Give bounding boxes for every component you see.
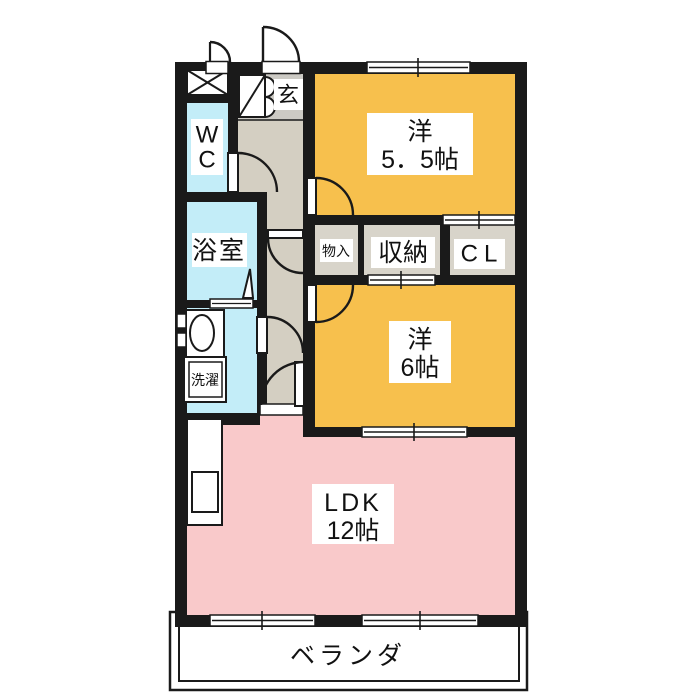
room-name: 浴室 bbox=[192, 237, 246, 265]
room-name: CL bbox=[461, 241, 504, 268]
wall-wc-bath bbox=[187, 192, 267, 202]
entrance-door bbox=[262, 27, 300, 74]
wall-bath-hall bbox=[257, 202, 267, 413]
label-ldk: LDK 12帖 bbox=[312, 484, 394, 545]
wall-right bbox=[515, 62, 527, 627]
wash-basin-fitting-2 bbox=[177, 333, 186, 347]
meter-box-door-arc bbox=[210, 42, 230, 62]
washing-machine: 洗濯 bbox=[184, 357, 226, 402]
label-western-5-5: 洋 5．5帖 bbox=[367, 113, 473, 175]
meter-box-doorway bbox=[206, 62, 228, 74]
room-name: LDK bbox=[324, 489, 382, 517]
hall-ldk-door-leaf bbox=[295, 362, 304, 406]
label-closet: CL bbox=[454, 239, 505, 269]
room-name: 玄 bbox=[277, 83, 299, 108]
entrance-door-arc bbox=[263, 27, 299, 62]
bath-sliding-door bbox=[210, 299, 253, 308]
label-small-storage: 物入 bbox=[320, 239, 353, 262]
label-bath: 浴室 bbox=[192, 233, 247, 267]
label-entrance: 玄 bbox=[274, 79, 303, 110]
floor-plan: ベランダ bbox=[0, 0, 700, 700]
room-name: 収納 bbox=[378, 239, 428, 267]
room-name: 洋 bbox=[407, 326, 432, 354]
wc-line-1: W bbox=[196, 122, 219, 149]
room-name: 洋 bbox=[407, 118, 432, 146]
western-6-door-leaf bbox=[307, 285, 316, 322]
wc-line-2: C bbox=[198, 147, 215, 174]
meter-box-door bbox=[206, 42, 230, 74]
wash-basin-bowl bbox=[190, 315, 214, 351]
veranda-label: ベランダ bbox=[290, 642, 406, 670]
entrance-doorway bbox=[262, 62, 300, 74]
wall-storage-divider-1 bbox=[358, 225, 364, 275]
wall-storage-divider-2 bbox=[440, 225, 450, 275]
wc-door-leaf bbox=[228, 153, 238, 192]
washing-machine-label: 洗濯 bbox=[191, 372, 219, 388]
room-name: 物入 bbox=[322, 243, 350, 259]
label-wc: W C bbox=[191, 119, 223, 175]
room-size: 12帖 bbox=[327, 517, 380, 545]
room-size: 6帖 bbox=[401, 354, 440, 382]
wash-basin-fitting-1 bbox=[177, 314, 186, 328]
room-size: 5．5帖 bbox=[381, 146, 459, 174]
kitchen-counter bbox=[187, 419, 222, 525]
kitchen-sink bbox=[192, 472, 218, 512]
western-5-5-door-leaf bbox=[307, 178, 316, 215]
washroom-door-leaf bbox=[257, 317, 267, 353]
bath-hall-door-leaf bbox=[268, 230, 303, 238]
label-storage: 収納 bbox=[371, 237, 435, 268]
shoe-cabinet bbox=[239, 75, 275, 117]
label-western-6: 洋 6帖 bbox=[389, 321, 451, 383]
floor-plan-canvas: ベランダ bbox=[0, 0, 700, 700]
